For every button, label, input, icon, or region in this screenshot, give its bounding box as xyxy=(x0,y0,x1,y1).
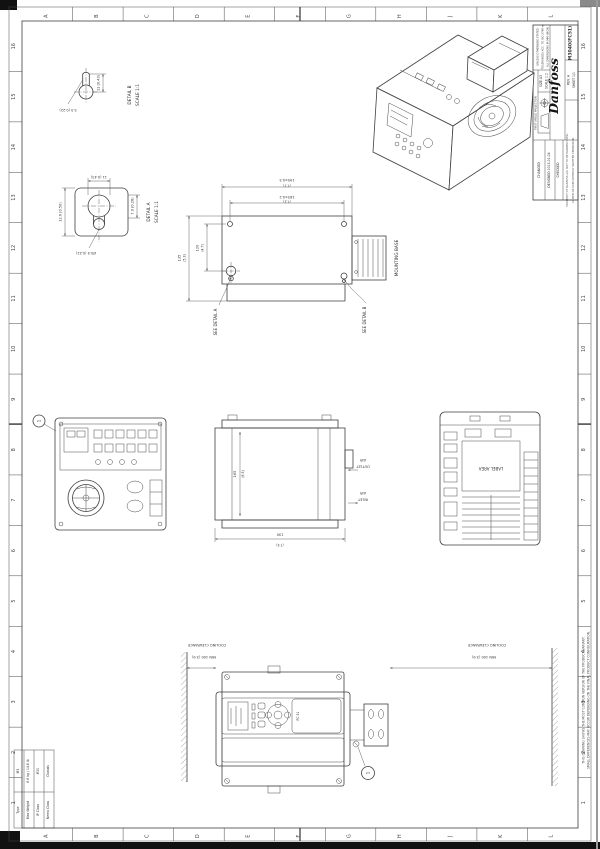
keypad-panel xyxy=(222,698,344,734)
ruler-letter-bottom: H xyxy=(397,834,403,838)
tolerance-note-line2: TOLERANCES ACC. TO ISO 2768-m xyxy=(541,24,545,69)
ruler-number-left: 12 xyxy=(11,245,17,251)
dim-left-outer-in: (5.3) xyxy=(183,254,187,261)
ruler-letter-top: F xyxy=(296,15,302,18)
ruler-letter-top: A xyxy=(43,14,49,18)
detail-b-scale: SCALE 1:1 xyxy=(135,84,141,106)
ruler-number-left: 14 xyxy=(11,144,17,150)
ruler-number-left: 13 xyxy=(11,194,17,200)
info-table-label: Type xyxy=(16,806,20,814)
side-profile-view: 165 (6.5) 190 (7.5) AIR OUTLET AIR INLET xyxy=(215,415,370,547)
ruler-letter-bottom: K xyxy=(498,834,504,838)
ruler-letter-top: C xyxy=(144,14,150,18)
side-dim-bottom-in: (7.5) xyxy=(276,543,283,547)
title-block: UNLESS OTHERWISE STATED TOLERANCES ACC. … xyxy=(533,24,578,206)
ruler-number-left: 3 xyxy=(11,700,17,703)
ruler-letter-top: E xyxy=(245,15,251,18)
ruler-number-right: 5 xyxy=(581,599,587,602)
ruler-letter-bottom: E xyxy=(245,835,251,838)
revision-field: REV. A xyxy=(567,74,571,85)
designed-field: DESIGNED 2013-01-04 xyxy=(547,152,551,187)
dim-top-inner-mm: 183±0.2 xyxy=(279,195,294,199)
ruler-number-right: 16 xyxy=(581,43,587,49)
ruler-letter-bottom: B xyxy=(94,834,100,838)
sheet-field: SHEET 1/1 xyxy=(572,72,576,88)
air-inlet-word1: AIR xyxy=(360,491,366,495)
side-bracket xyxy=(350,704,388,746)
air-outlet-word2: OUTLET xyxy=(355,465,370,469)
edge-note-line2: SMALL DIFFERENCES MAY OCCUR DEPENDING ON… xyxy=(587,631,591,769)
detail-b-dim-right: 11 (0.43) xyxy=(97,74,101,91)
ruler-letter-bottom: F xyxy=(296,835,302,838)
air-inlet-label: AIR INLET xyxy=(348,491,368,503)
balloon-callout-1: 1 xyxy=(33,415,56,431)
label-area-text: LABEL AREA xyxy=(478,466,503,471)
ruler-letter-bottom: G xyxy=(347,834,353,838)
ruler-letter-top: H xyxy=(397,14,403,18)
keyhole-detail-a-ref xyxy=(222,262,240,284)
dim-left-outer-mm: 135 xyxy=(178,255,182,262)
air-outlet-word1: AIR xyxy=(360,458,366,462)
dim-left-inner-in: (4.7) xyxy=(201,244,205,251)
clearance-boundary-left xyxy=(181,652,187,782)
side-dim-in: (6.5) xyxy=(241,470,245,477)
info-table-value: IP20 xyxy=(36,768,40,775)
detail-a-dim-right: 7.0 (0.28) xyxy=(131,197,135,215)
side-dim-bottom-mm: 190 xyxy=(277,533,284,537)
ruler-letter-top: D xyxy=(195,14,201,18)
drawing-number: M3040(FC51) xyxy=(568,26,574,60)
ruler-letter-top: G xyxy=(347,14,353,18)
label-area-box xyxy=(462,441,520,491)
ruler-number-left: 10 xyxy=(11,346,17,352)
corner-mark-top-left xyxy=(0,0,17,10)
ruler-number-right: 15 xyxy=(581,93,587,99)
edge-disclaimer: THIS DRAWING SHOWS THE MOST COMMON VERSI… xyxy=(582,631,591,769)
cooling-clearance-left-label: COOLING CLEARANCE xyxy=(188,643,226,647)
ruler-number-right: 11 xyxy=(581,295,587,301)
mounting-view: MOUNTING BASE 195±0.5 (7.7) 183±0.2 (7.2… xyxy=(178,178,401,335)
terminal-blocks xyxy=(94,430,157,465)
ruler-number-left: 8 xyxy=(11,448,17,451)
checked-field: CHECKED xyxy=(556,162,560,178)
see-detail-a-label: SEE DETAIL A xyxy=(213,308,218,335)
edge-note-line1: THIS DRAWING SHOWS THE MOST COMMON VERSI… xyxy=(582,637,586,765)
ruler-letters-top: ABCDEFGHJKL xyxy=(43,14,554,18)
ruler-number-right: 14 xyxy=(581,144,587,150)
dim-top-outer-mm: 195±0.5 xyxy=(279,178,294,182)
detail-a-title: DETAIL A xyxy=(146,202,152,221)
dim-left-inner-mm: 120 xyxy=(196,245,200,252)
ruler-number-right: 8 xyxy=(581,448,587,451)
drawing-canvas: ABCDEFGHJKL ABCDEFGHJKL 1615141312111098… xyxy=(0,0,600,849)
mounting-keyholes xyxy=(222,222,347,285)
ruler-number-left: 6 xyxy=(11,549,17,552)
ruler-letter-top: J xyxy=(448,15,454,17)
cooling-clearance-right-label: COOLING CLEARANCE xyxy=(468,643,506,647)
detail-a-dim-bottom: Ø5.5 (0.22) xyxy=(75,251,96,256)
info-table-value: 6.6 kg / 14.6 lb xyxy=(26,759,30,782)
danfoss-logo: Danfoss xyxy=(546,58,561,115)
front-view: COOLING CLEARANCE MIN 100 (3.9) COOLING … xyxy=(181,643,558,793)
ruler-letter-bottom: L xyxy=(549,835,555,838)
info-table-value: M3 xyxy=(16,769,20,774)
info-table: TypeM3Max Weight6.6 kg / 14.6 lbIP Class… xyxy=(14,750,54,828)
balloon-2-number: 1 xyxy=(365,771,370,774)
ruler-number-right: 10 xyxy=(581,346,587,352)
detail-a-dim-left: 12.6 (0.50) xyxy=(59,202,63,222)
side-terminal-column xyxy=(444,432,457,530)
top-view: 1 xyxy=(33,415,166,530)
see-detail-b-label: SEE DETAIL B xyxy=(362,306,367,333)
ruler-letter-bottom: D xyxy=(195,834,201,838)
detail-a-scale: SCALE 1:1 xyxy=(154,201,160,223)
mounting-base-label: MOUNTING BASE xyxy=(394,239,400,276)
dim-top-inner-in: (7.2) xyxy=(283,200,290,204)
detail-b-dim-bottom: 5.5 (0.22) xyxy=(59,108,77,112)
ruler-number-left: 7 xyxy=(11,499,17,502)
side-dim-mm: 165 xyxy=(233,471,237,478)
info-table-value: Chassis xyxy=(46,765,50,777)
info-table-text: TypeM3Max Weight6.6 kg / 14.6 lbIP Class… xyxy=(16,759,50,819)
keyhole-b-icon xyxy=(74,68,98,104)
lcp-keypad: FC 51 xyxy=(228,699,341,733)
isometric-view xyxy=(373,35,534,190)
corner-screws xyxy=(225,675,342,784)
projection-label: FIRST ANGLE PROJECTION xyxy=(534,96,538,130)
size-field: SIZE A3 xyxy=(539,75,543,87)
keyhole-a-icon xyxy=(82,190,116,242)
ruler-number-right: 13 xyxy=(581,194,587,200)
ruler-letter-top: B xyxy=(94,14,100,18)
mounting-base-block xyxy=(352,236,386,280)
ruler-letter-top: K xyxy=(498,14,504,18)
air-inlet-word2: INLET xyxy=(357,498,368,502)
ruler-number-left: 4 xyxy=(11,650,17,653)
ruler-number-right: 12 xyxy=(581,245,587,251)
ruler-number-right: 1 xyxy=(581,801,587,804)
ruler-number-left: 5 xyxy=(11,599,17,602)
label-side-view: LABEL AREA xyxy=(440,412,540,545)
page-edge-bottom xyxy=(0,842,600,849)
balloon-1-number: 1 xyxy=(36,419,41,422)
page-edge-right xyxy=(596,0,598,849)
proprietary-note-line2: COPIED OR USED WITHOUT WRITTEN PERMISSIO… xyxy=(571,137,575,203)
ruler-letter-top: L xyxy=(549,15,555,18)
ruler-number-right: 6 xyxy=(581,549,587,552)
detail-a-dim-top: 11 (0.43) xyxy=(90,175,107,179)
detail-b-view: 11 (0.43) 5.5 (0.22) DETAIL B SCALE 1:1 xyxy=(59,68,141,112)
tolerance-note-line1: UNLESS OTHERWISE STATED xyxy=(536,28,540,65)
proprietary-note-line1: PROPERTY OF DANFOSS A/S. NOT TO BE HANDE… xyxy=(565,133,569,206)
ruler-letters-bottom: ABCDEFGHJKL xyxy=(43,834,554,838)
ruler-number-left: 11 xyxy=(11,295,17,301)
lower-cover xyxy=(222,738,344,762)
detail-b-title: DETAIL B xyxy=(127,85,133,104)
ruler-letter-bottom: A xyxy=(43,834,49,838)
fan-icon xyxy=(68,480,104,516)
dim-top-outer-in: (7.7) xyxy=(283,184,290,188)
min-clearance-right: MIN 100 (3.9) xyxy=(471,655,496,659)
info-table-label: IP Class xyxy=(36,804,40,816)
clearance-boundary-right xyxy=(552,648,558,786)
back-plate xyxy=(222,672,344,786)
nav-wheel-icon xyxy=(266,702,291,729)
info-table-label: Max Weight xyxy=(26,800,30,819)
ruler-number-left: 16 xyxy=(11,43,17,49)
ruler-letter-bottom: C xyxy=(144,834,150,838)
front-housing xyxy=(216,692,350,766)
screw-callout: 1 xyxy=(353,741,375,780)
ruler-number-right: 9 xyxy=(581,398,587,401)
ruler-number-right: 7 xyxy=(581,499,587,502)
ruler-number-left: 15 xyxy=(11,93,17,99)
ruler-number-left: 9 xyxy=(11,398,17,401)
changed-field: CHANGED xyxy=(537,162,541,178)
min-clearance-left: MIN 100 (3.9) xyxy=(191,655,216,659)
detail-a-view: 12.6 (0.50) 7.0 (0.28) 11 (0.43) Ø5.5 (0… xyxy=(59,175,161,256)
drawing-sheet: ABCDEFGHJKL ABCDEFGHJKL 1615141312111098… xyxy=(0,0,600,849)
ruler-letter-bottom: J xyxy=(448,835,454,837)
info-table-label: Nema Class xyxy=(46,800,50,819)
panel-model-label: FC 51 xyxy=(296,712,300,721)
vent-slats xyxy=(462,452,538,540)
